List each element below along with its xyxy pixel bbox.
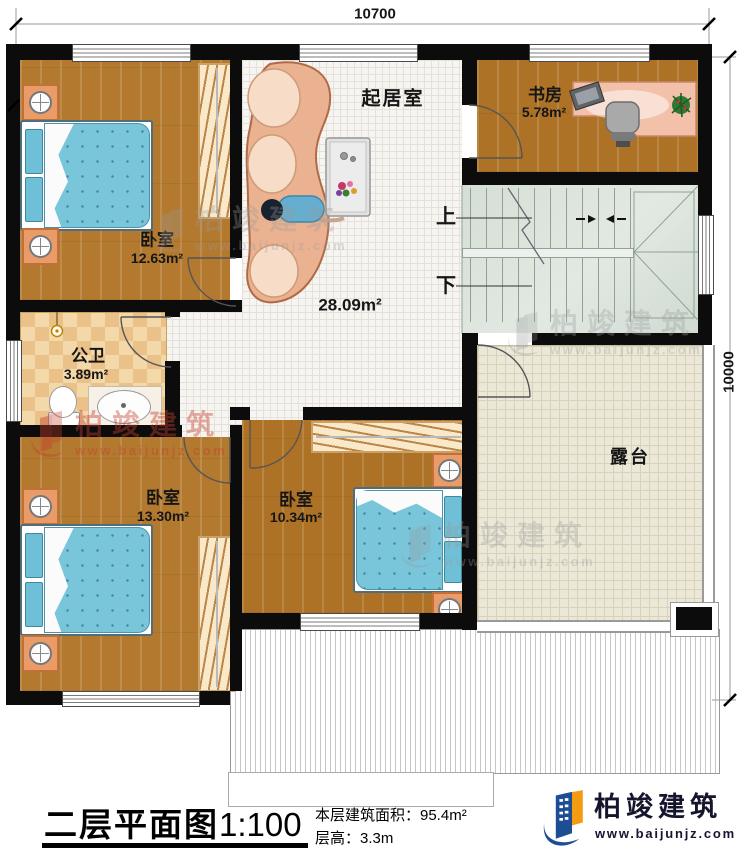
room-area: 13.30m² bbox=[137, 509, 189, 523]
stairs-up-label: 上 bbox=[436, 207, 456, 227]
stairs-down-label: 下 bbox=[436, 276, 456, 296]
wall bbox=[303, 407, 462, 420]
dimension-right: 10000 bbox=[722, 351, 737, 393]
wall bbox=[418, 613, 462, 629]
bed bbox=[353, 487, 467, 593]
railing-post bbox=[676, 607, 712, 630]
wall bbox=[165, 361, 180, 425]
window bbox=[698, 215, 714, 295]
wall bbox=[6, 420, 20, 705]
office-chair bbox=[606, 102, 639, 133]
wall bbox=[416, 44, 529, 60]
floor-area-text: 本层建筑面积：95.4m² bbox=[315, 804, 467, 827]
wall bbox=[462, 60, 477, 105]
room-area: 12.63m² bbox=[131, 251, 183, 265]
window bbox=[72, 44, 191, 62]
wardrobe bbox=[311, 421, 466, 453]
window bbox=[300, 613, 420, 631]
room-label: 起居室 bbox=[361, 90, 424, 109]
bed bbox=[20, 120, 153, 231]
toilet bbox=[46, 386, 80, 430]
window bbox=[299, 44, 418, 62]
company-website: www.baijunjz.com bbox=[595, 826, 736, 841]
stairs-center-rail bbox=[462, 248, 634, 258]
wall bbox=[230, 407, 250, 420]
wall bbox=[532, 333, 712, 345]
room-area: 3.89m² bbox=[64, 367, 108, 381]
company-name: 柏竣建筑 bbox=[594, 794, 722, 821]
sink-counter bbox=[88, 386, 162, 428]
wall bbox=[6, 44, 20, 340]
room-label: 公卫 bbox=[71, 348, 105, 365]
wall bbox=[462, 333, 477, 630]
drawing-title: 二层平面图 bbox=[44, 806, 219, 843]
room-area: 5.78m² bbox=[522, 105, 566, 119]
living-room-furniture bbox=[242, 60, 372, 310]
lamp-icon bbox=[29, 91, 52, 114]
dimension-top: 10700 bbox=[354, 7, 396, 22]
room-label: 露台 bbox=[610, 448, 650, 466]
window bbox=[62, 691, 200, 707]
study-furniture bbox=[477, 60, 698, 172]
wall bbox=[698, 44, 712, 215]
nightstand bbox=[22, 84, 59, 121]
lamp-icon bbox=[29, 235, 52, 258]
room-label: 卧室 bbox=[140, 232, 174, 249]
stairs-lower-flight bbox=[470, 256, 632, 322]
wall bbox=[189, 44, 299, 60]
drawing-title-block: 二层平面图1:100 bbox=[44, 798, 302, 846]
room-label: 卧室 bbox=[146, 490, 180, 507]
window bbox=[6, 340, 22, 422]
terrace-railing bbox=[702, 345, 715, 623]
wall bbox=[165, 312, 180, 317]
lamp-icon bbox=[29, 642, 52, 665]
terrace-floor bbox=[477, 345, 705, 624]
room-label: 卧室 bbox=[279, 492, 313, 509]
lamp-icon bbox=[438, 459, 461, 482]
wall bbox=[6, 425, 182, 437]
window bbox=[529, 44, 650, 62]
nightstand bbox=[22, 228, 59, 265]
room-area: 10.34m² bbox=[270, 510, 322, 524]
wall bbox=[230, 60, 242, 258]
nightstand bbox=[22, 635, 59, 672]
wall bbox=[6, 691, 62, 705]
wall bbox=[462, 172, 712, 185]
stairs-upper-flight bbox=[470, 188, 632, 248]
company-logo-icon bbox=[536, 786, 590, 850]
drawing-scale: 1:100 bbox=[219, 806, 302, 843]
room-area: 28.09m² bbox=[318, 297, 381, 314]
title-underline bbox=[42, 843, 308, 848]
nightstand bbox=[22, 488, 59, 525]
wall bbox=[462, 158, 477, 172]
floor-plan-page: 10700 10000 卧室 12.63m² 起居室 28.09m² 书房 5.… bbox=[0, 0, 750, 858]
lamp-icon bbox=[29, 495, 52, 518]
deck-awning bbox=[230, 629, 720, 774]
room-label: 书房 bbox=[528, 87, 562, 104]
wall bbox=[198, 691, 230, 705]
wall bbox=[6, 300, 242, 312]
floor-info: 本层建筑面积：95.4m² 层高：3.3m bbox=[315, 804, 467, 850]
bed bbox=[20, 524, 153, 636]
floor-height-text: 层高：3.3m bbox=[315, 827, 467, 850]
wall bbox=[242, 613, 300, 629]
wall bbox=[230, 425, 242, 691]
